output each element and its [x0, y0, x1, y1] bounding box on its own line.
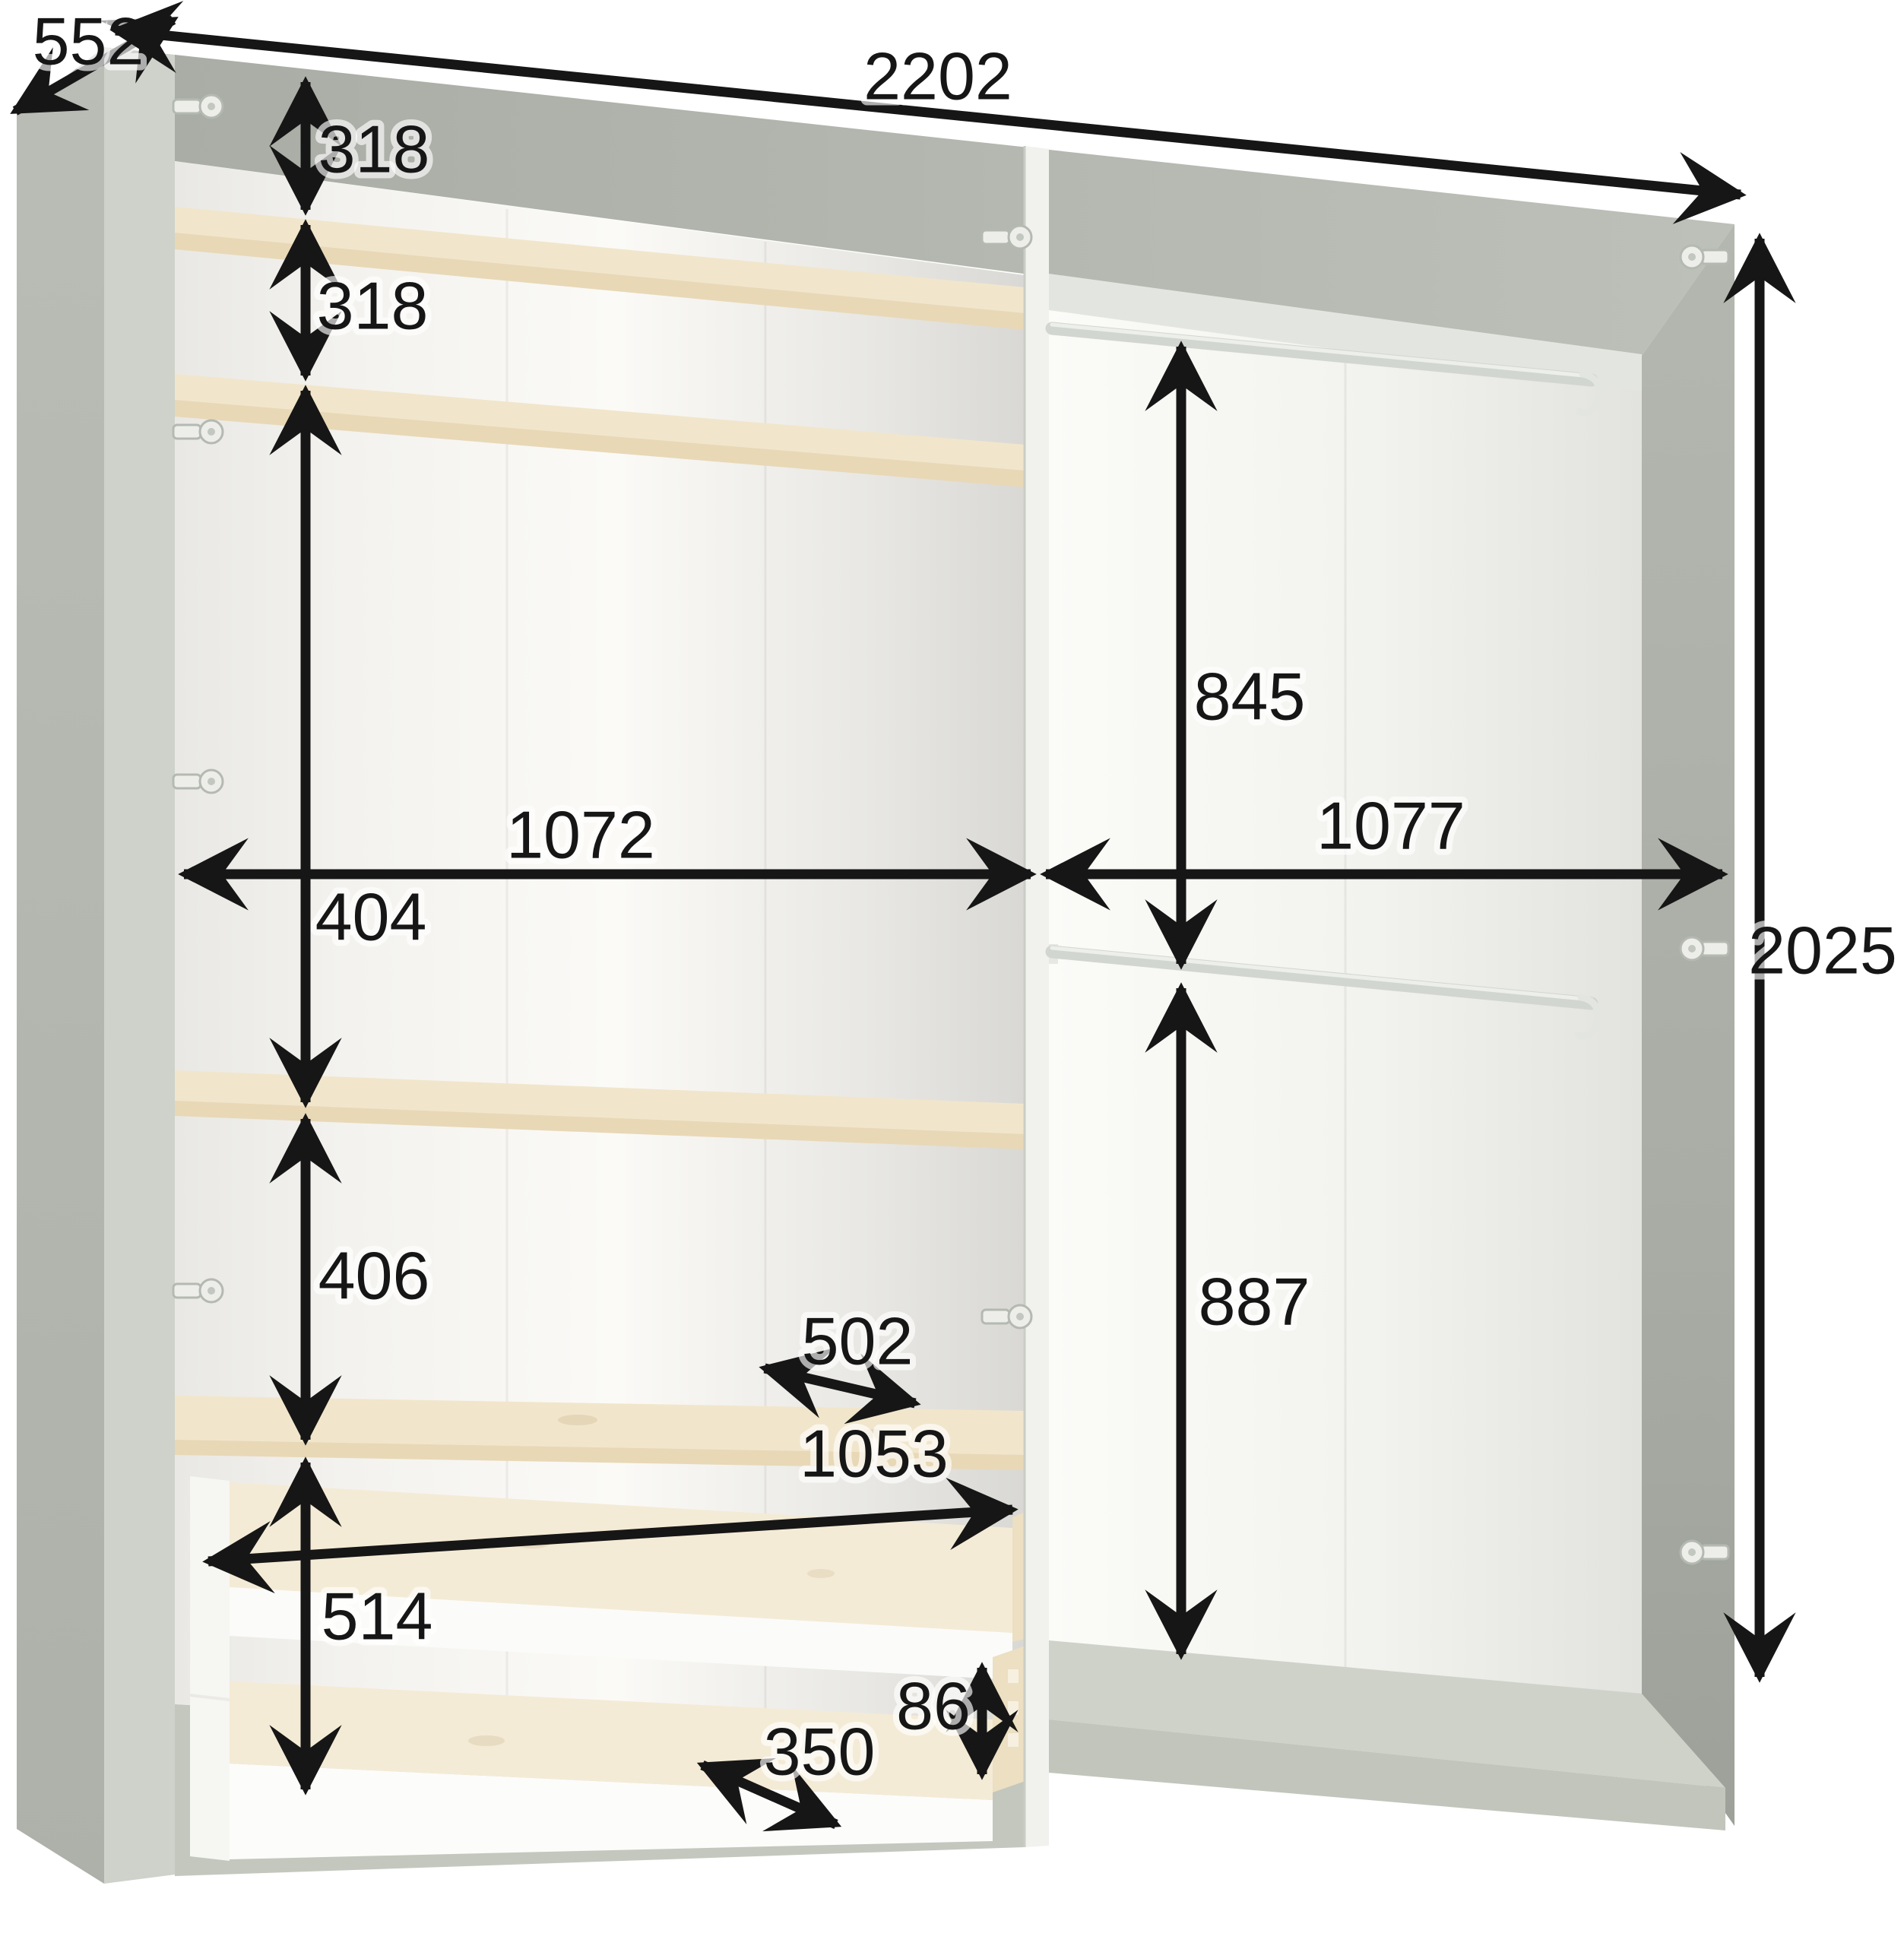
- left-side-panel-front-edge: [104, 47, 175, 1884]
- dovetail-joint: [1008, 1669, 1019, 1683]
- right-side-panel-inner: [1642, 224, 1735, 1826]
- wardrobe-dimension-diagram: 552 2202 318 318 404 406 514 107: [0, 0, 1904, 1946]
- dimension-label: 406: [318, 1238, 430, 1314]
- drawer-side-panel-wood: [993, 1645, 1028, 1792]
- dimension-label: 318: [318, 112, 430, 187]
- dimension-height-2025: 2025: [1748, 239, 1897, 1677]
- dimension-label: 1072: [506, 797, 655, 873]
- diagram-stage: 552 2202 318 318 404 406 514 107: [0, 0, 1904, 1946]
- dimension-label: 318: [317, 268, 429, 344]
- drawer-front-panel: [190, 1476, 230, 1698]
- dimension-label: 1077: [1316, 788, 1465, 864]
- wood-knot: [807, 1569, 835, 1578]
- center-divider-front-edge: [1025, 146, 1049, 1847]
- dimension-label: 2025: [1748, 913, 1897, 988]
- dimension-label: 1053: [800, 1416, 949, 1491]
- dovetail-joint: [1008, 1701, 1019, 1715]
- dimension-label: 502: [802, 1304, 914, 1379]
- dimension-label: 350: [764, 1714, 876, 1789]
- dimension-label: 2202: [863, 39, 1012, 114]
- dimension-label: 514: [322, 1579, 433, 1654]
- wardrobe-structure: [17, 47, 1735, 1884]
- left-side-panel-outer: [17, 47, 104, 1884]
- dimension-label: 887: [1199, 1264, 1310, 1339]
- dimension-label: 845: [1194, 659, 1306, 734]
- drawer-front-panel: [190, 1697, 230, 1861]
- dimension-label: 404: [315, 880, 427, 955]
- wood-knot: [558, 1415, 597, 1425]
- dimension-label: 86: [896, 1669, 971, 1744]
- dovetail-joint: [1008, 1733, 1019, 1747]
- wood-knot: [468, 1735, 505, 1746]
- dimension-label: 552: [33, 4, 144, 79]
